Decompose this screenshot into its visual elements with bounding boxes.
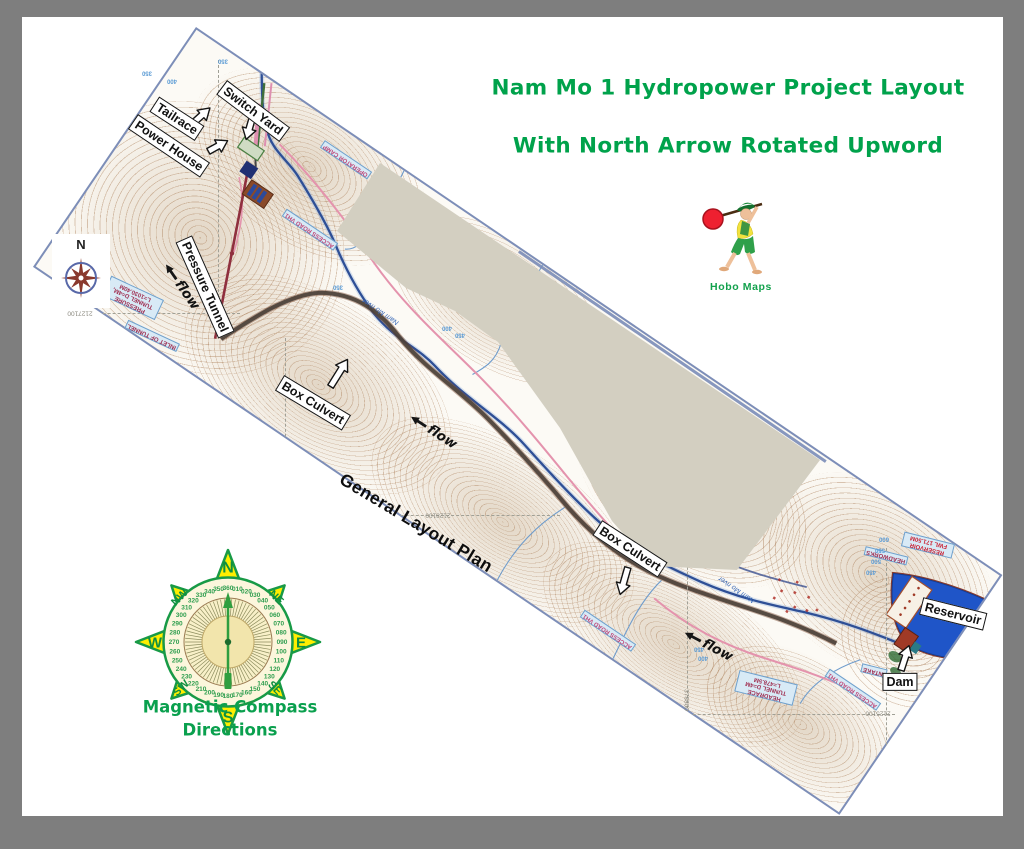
callout-label: Box Culvert [592, 520, 667, 578]
flow-arrow-icon [407, 412, 429, 431]
flow-label: flow [680, 625, 736, 665]
callout-label: Box Culvert [275, 375, 351, 431]
flow-arrow-icon [161, 261, 181, 283]
callout-label: Switch Yard [216, 80, 290, 142]
flow-text: flow [424, 421, 460, 452]
flow-arrow-icon [682, 628, 704, 646]
flow-label: flow [406, 409, 460, 452]
callout-label: Reservoir [919, 597, 987, 631]
callout-label: Dam [882, 673, 917, 691]
callout-layer: Switch YardTailracePower HousePressure T… [0, 0, 1024, 849]
flow-text: flow [700, 636, 736, 665]
screenshot-canvas: OPERATOR CAMPACCESS ROAD VH1ACCESS ROAD … [0, 0, 1024, 849]
